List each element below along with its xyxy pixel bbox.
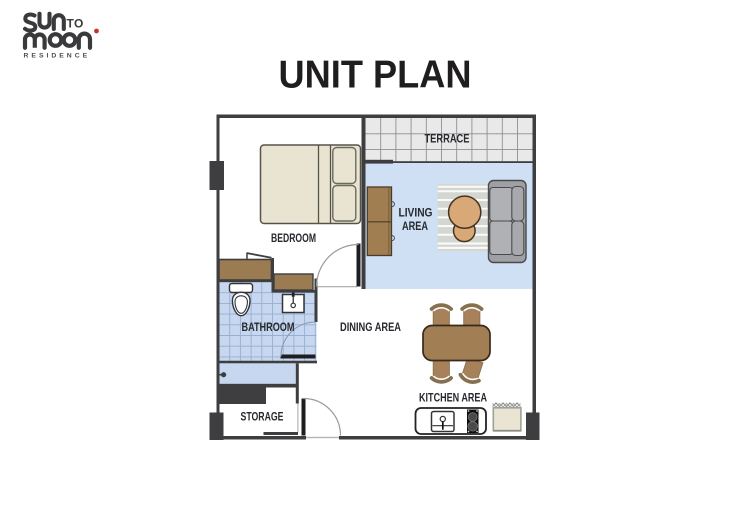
svg-text:BEDROOM: BEDROOM xyxy=(271,233,316,245)
svg-text:RESIDENCE: RESIDENCE xyxy=(24,53,91,60)
svg-text:BATHROOM: BATHROOM xyxy=(242,322,295,334)
svg-text:TO: TO xyxy=(67,16,84,30)
svg-text:UNIT PLAN: UNIT PLAN xyxy=(279,54,472,97)
svg-text:KITCHEN AREA: KITCHEN AREA xyxy=(419,393,487,405)
svg-text:TERRACE: TERRACE xyxy=(425,132,470,146)
svg-text:STORAGE: STORAGE xyxy=(241,412,284,424)
svg-text:LIVING: LIVING xyxy=(399,208,433,220)
svg-text:AREA: AREA xyxy=(402,221,428,233)
svg-text:DINING AREA: DINING AREA xyxy=(340,322,401,334)
